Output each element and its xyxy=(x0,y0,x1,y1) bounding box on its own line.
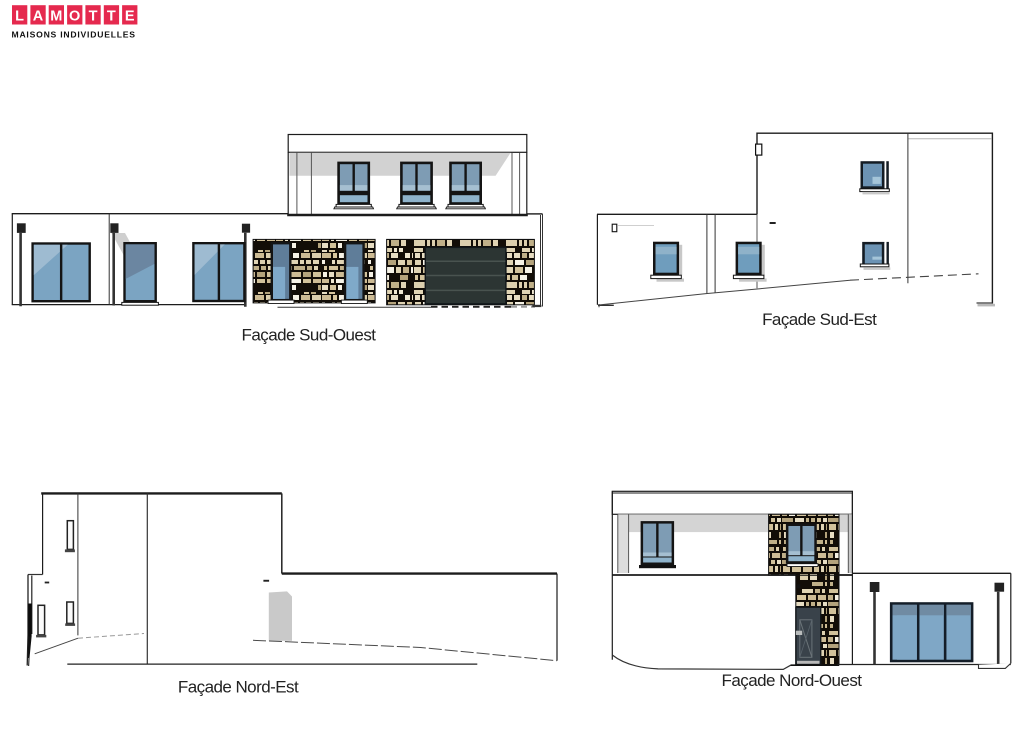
svg-text:Façade Nord-Ouest: Façade Nord-Ouest xyxy=(722,671,863,690)
svg-text:A: A xyxy=(33,8,44,24)
svg-text:T: T xyxy=(107,8,116,24)
svg-text:E: E xyxy=(125,8,135,24)
svg-text:L: L xyxy=(15,8,24,24)
svg-text:M: M xyxy=(50,8,62,24)
svg-text:MAISONS INDIVIDUELLES: MAISONS INDIVIDUELLES xyxy=(12,29,136,39)
svg-text:Façade Sud-Ouest: Façade Sud-Ouest xyxy=(242,325,377,344)
svg-text:Façade Sud-Est: Façade Sud-Est xyxy=(762,310,877,329)
svg-text:T: T xyxy=(89,8,98,24)
svg-text:O: O xyxy=(69,8,80,24)
svg-text:Façade Nord-Est: Façade Nord-Est xyxy=(178,678,299,697)
